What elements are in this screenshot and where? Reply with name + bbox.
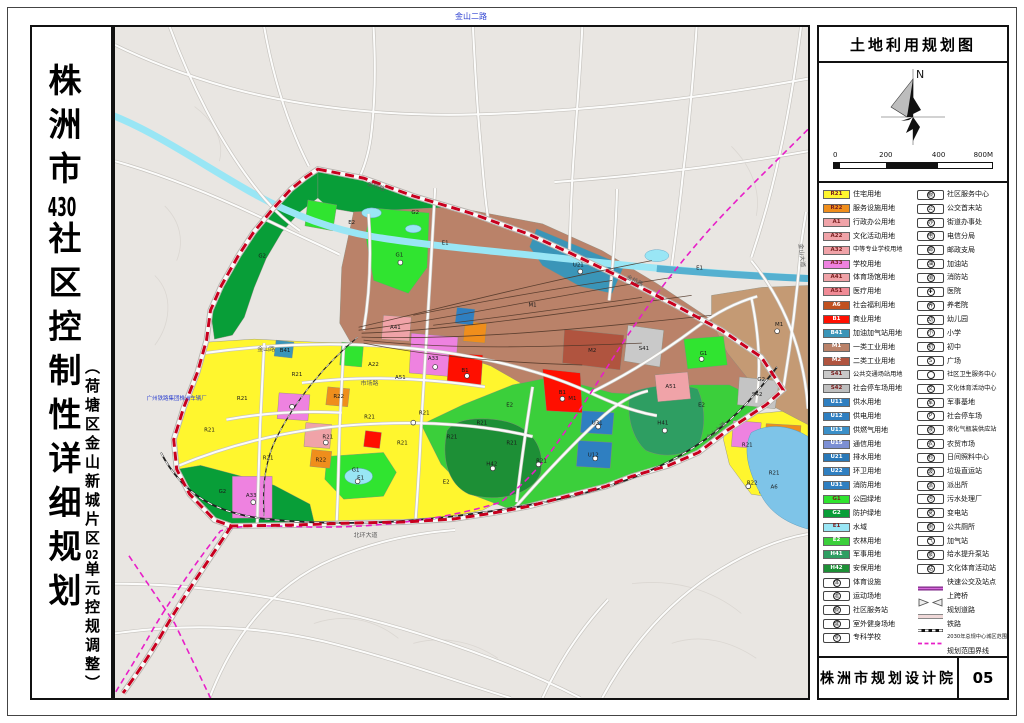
zone-code-label: R21 — [292, 372, 303, 378]
legend-row: A6社会福利用地 — [823, 299, 915, 313]
legend-label: 规划范围界线 — [947, 648, 989, 655]
legend-swatch: A33 — [823, 260, 850, 269]
legend-symbol-icon: 专 — [823, 633, 850, 643]
legend-label: 社区服务站 — [853, 607, 888, 614]
legend-row: A33学校用地 — [823, 257, 915, 271]
zone-code-label: R21 — [364, 415, 375, 421]
legend-label: 2030年总规中心城区范围界线 — [947, 635, 1007, 640]
legend-swatch: S41 — [823, 370, 850, 379]
legend-label: 军事用地 — [853, 551, 881, 558]
legend-label: 专科学校 — [853, 634, 881, 641]
legend-swatch: U22 — [823, 467, 850, 476]
legend-swatch: A51 — [823, 287, 850, 296]
legend-swatch: B41 — [823, 329, 850, 338]
legend-row: 专专科学校 — [823, 631, 915, 645]
zone-code-label: R22 — [333, 394, 344, 400]
legend-symbol-icon: 料 — [917, 453, 944, 463]
legend-row: U12供电用地 — [823, 410, 915, 424]
zone-code-label: E1 — [696, 266, 703, 272]
legend-line-symbol-boundary — [917, 647, 944, 656]
legend-row: 气加气站 — [917, 534, 1007, 548]
legend-row: A32中等专业学校用地 — [823, 243, 915, 257]
legend-row: 服社区服务站 — [823, 603, 915, 617]
legend-swatch: S42 — [823, 384, 850, 393]
legend-swatch: E2 — [823, 537, 850, 546]
legend: R21住宅用地R22服务设施用地A1行政办公用地A22文化活动用地A32中等专业… — [819, 183, 1007, 656]
legend-row: 运运动场地 — [823, 589, 915, 603]
legend-label: 水域 — [853, 524, 867, 531]
scale-tick: 0 — [833, 151, 837, 159]
zone-code-label: R21 — [477, 421, 488, 427]
legend-row: 办街道办事处 — [917, 216, 1007, 230]
legend-label: 快速公交及站点 — [947, 579, 996, 586]
legend-symbol-icon: 文 — [917, 384, 944, 394]
compass-box: N 0200400800M — [819, 63, 1007, 183]
legend-row: 2030年总规中心城区范围界线 — [917, 631, 1007, 645]
zone-code-label: A51 — [395, 375, 406, 381]
legend-row: A41体育场馆用地 — [823, 271, 915, 285]
legend-row: H41军事用地 — [823, 548, 915, 562]
legend-label: 社会停车场 — [947, 413, 982, 420]
legend-row: 电电信分局 — [917, 230, 1007, 244]
zone-code-label: B1 — [461, 368, 468, 374]
legend-column-right: 服社区服务中心公公交首末站办街道办事处电电信分局邮邮政支局油加油站消消防站✚医院… — [917, 188, 1007, 654]
legend-label: 体育场馆用地 — [853, 274, 895, 281]
legend-swatch: A1 — [823, 218, 850, 227]
legend-swatch: A41 — [823, 273, 850, 282]
legend-row: A51医疗用地 — [823, 285, 915, 299]
legend-swatch: A22 — [823, 232, 850, 241]
legend-label: 室外健身场地 — [853, 621, 895, 628]
legend-label: 通信用地 — [853, 441, 881, 448]
zone-code-label: G2 — [411, 210, 419, 216]
legend-label: 日间照料中心 — [947, 454, 989, 461]
legend-symbol-icon: 养 — [917, 301, 944, 311]
legend-label: 文化活动用地 — [853, 233, 895, 240]
legend-swatch: R21 — [823, 190, 850, 199]
legend-label: 派出所 — [947, 482, 968, 489]
agency-name: 株洲市规划设计院 — [819, 658, 957, 698]
legend-row: G1公园绿地 — [823, 493, 915, 507]
legend-label: 文化体育活动中心 — [947, 386, 997, 392]
legend-row: 上跨桥 — [917, 589, 1007, 603]
landuse-map[interactable]: 金桥路金桥路北环大道金山大道金山大道市场路金山路广州铁路集团株洲车辆厂G2G2G… — [115, 27, 808, 698]
legend-label: 社会停车场用地 — [853, 385, 902, 392]
legend-swatch: M1 — [823, 343, 850, 352]
zone-code-label: R21 — [263, 455, 274, 461]
zone-code-label: A33 — [428, 356, 439, 362]
legend-symbol-icon: 邮 — [917, 245, 944, 255]
legend-row: 油加油站 — [917, 257, 1007, 271]
map-title: 土地利用规划图 — [819, 27, 1007, 63]
legend-row: E1水域 — [823, 520, 915, 534]
legend-row: P社会停车场 — [917, 410, 1007, 424]
legend-label: 公园绿地 — [853, 496, 881, 503]
zone-code-label: G2 — [757, 377, 765, 383]
legend-symbol-icon: 气 — [917, 536, 944, 546]
legend-symbol-icon: 服 — [917, 190, 944, 200]
legend-row: M1一类工业用地 — [823, 340, 915, 354]
legend-symbol-icon: 电 — [917, 231, 944, 241]
legend-swatch: B1 — [823, 315, 850, 324]
legend-label: 公交首末站 — [947, 205, 982, 212]
zone-code-label: M1 — [775, 322, 783, 328]
legend-label: 住宅用地 — [853, 191, 881, 198]
legend-row: 液液化气瓶装供应站 — [917, 423, 1007, 437]
legend-label: 垃圾直运站 — [947, 468, 982, 475]
zone-code-label: B1 — [559, 390, 566, 396]
legend-swatch: R22 — [823, 204, 850, 213]
legend-label: 公共交通场站用地 — [853, 372, 903, 378]
legend-line-symbol-bridge — [917, 592, 944, 601]
title-bar: 株洲市规划设计院 05 — [819, 656, 1007, 698]
zone-code-label: G2 — [219, 489, 227, 495]
north-arrow-icon: N — [871, 65, 955, 149]
plan-sub-title: （荷塘区金山新城片区02单元控规调整） — [84, 359, 99, 694]
zone-code-label: S42 — [752, 392, 762, 398]
legend-row: 圾垃圾直运站 — [917, 465, 1007, 479]
scale-tick: 800M — [974, 151, 993, 159]
legend-label: 行政办公用地 — [853, 219, 895, 226]
legend-row: B1商业用地 — [823, 313, 915, 327]
legend-line-symbol-line2030 — [917, 633, 944, 642]
zone-code-label: R21 — [204, 428, 215, 434]
zone-code-label: E1 — [442, 241, 449, 247]
legend-symbol-icon: 厕 — [917, 522, 944, 532]
legend-label: 学校用地 — [853, 261, 881, 268]
legend-symbol-icon: ✚ — [917, 287, 944, 297]
legend-label: 运动场地 — [853, 593, 881, 600]
legend-symbol-icon: 农 — [917, 439, 944, 449]
legend-label: 供燃气用地 — [853, 427, 888, 434]
zone-code-label: R21 — [536, 458, 547, 464]
legend-row: 邮邮政支局 — [917, 243, 1007, 257]
legend-row: 厕公共厕所 — [917, 520, 1007, 534]
legend-label: 加气站 — [947, 538, 968, 545]
legend-symbol-icon: 站 — [917, 564, 944, 574]
legend-label: 铁路 — [947, 621, 961, 628]
legend-label: 规划道路 — [947, 607, 975, 614]
legend-row: A22文化活动用地 — [823, 230, 915, 244]
legend-row: ✚医院 — [917, 285, 1007, 299]
legend-row: 农农贸市场 — [917, 437, 1007, 451]
zone-code-label: R22 — [747, 480, 758, 486]
legend-row: S广场 — [917, 354, 1007, 368]
zone-code-label: R21 — [419, 411, 430, 417]
zone-code-label: R22 — [315, 457, 326, 463]
north-label: N — [916, 68, 924, 81]
legend-row: R22服务设施用地 — [823, 202, 915, 216]
zone-code-label: U12 — [588, 452, 599, 458]
legend-label: 社会福利用地 — [853, 302, 895, 309]
legend-row: 站文化体育活动站 — [917, 562, 1007, 576]
legend-label: 服务设施用地 — [853, 205, 895, 212]
zone-code-label: R21 — [237, 396, 248, 402]
legend-swatch: M2 — [823, 357, 850, 366]
drawing-sheet: 株洲市430社区控制性详细规划 （荷塘区金山新城片区02单元控规调整） 金山二路 — [0, 0, 1024, 723]
legend-row: 服社区服务中心 — [917, 188, 1007, 202]
legend-label: 医疗用地 — [853, 288, 881, 295]
legend-symbol-icon — [917, 370, 944, 380]
legend-row: A1行政办公用地 — [823, 216, 915, 230]
zone-code-label: R21 — [322, 435, 333, 441]
legend-row: 料日间照料中心 — [917, 451, 1007, 465]
zone-code-label: A6 — [771, 484, 779, 490]
legend-label: 农贸市场 — [947, 441, 975, 448]
legend-row: S41公共交通场站用地 — [823, 368, 915, 382]
legend-symbol-icon: S — [917, 356, 944, 366]
legend-line-symbol-road — [917, 606, 944, 615]
scale-tick: 200 — [879, 151, 892, 159]
legend-swatch: U12 — [823, 412, 850, 421]
zone-code-label: R21 — [506, 441, 517, 447]
legend-label: 体育设施 — [853, 579, 881, 586]
legend-row: 派派出所 — [917, 479, 1007, 493]
legend-symbol-icon: 体 — [823, 578, 850, 588]
scale-tick-labels: 0200400800M — [833, 151, 993, 160]
legend-row: S42社会停车场用地 — [823, 382, 915, 396]
legend-label: 社区卫生服务中心 — [947, 372, 997, 378]
legend-label: 消防站 — [947, 274, 968, 281]
zone-code-label: U21 — [573, 263, 584, 269]
legend-label: 商业用地 — [853, 316, 881, 323]
zone-code-label: G2 — [258, 254, 266, 260]
legend-row: 小小学 — [917, 326, 1007, 340]
legend-label: 养老院 — [947, 302, 968, 309]
zone-code-label: E2 — [348, 220, 355, 226]
legend-column-left: R21住宅用地R22服务设施用地A1行政办公用地A22文化活动用地A32中等专业… — [823, 188, 915, 654]
zone-code-label: G1 — [396, 253, 404, 259]
legend-row: U31消防用地 — [823, 479, 915, 493]
legend-row: 体体育设施 — [823, 576, 915, 590]
legend-row: 健室外健身场地 — [823, 617, 915, 631]
legend-row: H42安保用地 — [823, 562, 915, 576]
road-name-label: 金山路 — [257, 345, 275, 353]
annotation-label: 广州铁路集团株洲车辆厂 — [147, 394, 208, 402]
legend-row: 军军事基地 — [917, 396, 1007, 410]
legend-symbol-icon: 圾 — [917, 467, 944, 477]
legend-row: 初初中 — [917, 340, 1007, 354]
zone-code-label: E2 — [443, 479, 450, 485]
zone-code-label: M1 — [568, 396, 576, 402]
legend-swatch: U31 — [823, 481, 850, 490]
legend-label: 军事基地 — [947, 399, 975, 406]
legend-label: 小学 — [947, 330, 961, 337]
legend-row: G2防护绿地 — [823, 506, 915, 520]
legend-row: 规划道路 — [917, 603, 1007, 617]
legend-row: U15通信用地 — [823, 437, 915, 451]
legend-row: 社区卫生服务中心 — [917, 368, 1007, 382]
legend-label: 邮政支局 — [947, 247, 975, 254]
zone-code-label: B41 — [280, 348, 291, 354]
legend-label: 污水处理厂 — [947, 496, 982, 503]
legend-symbol-icon: 公 — [917, 204, 944, 214]
zone-code-label: E2 — [698, 403, 705, 409]
legend-row: R21住宅用地 — [823, 188, 915, 202]
zone-code-label: H42 — [486, 461, 497, 467]
legend-symbol-icon: 变 — [917, 508, 944, 518]
legend-label: 二类工业用地 — [853, 358, 895, 365]
legend-label: 消防用地 — [853, 482, 881, 489]
legend-label: 社区服务中心 — [947, 191, 989, 198]
road-name-label: 北环大道 — [354, 531, 378, 539]
legend-row: 消消防站 — [917, 271, 1007, 285]
zone-code-label: R21 — [397, 441, 408, 447]
road-name-label: 市场路 — [361, 379, 379, 387]
legend-label: 一类工业用地 — [853, 344, 895, 351]
legend-label: 农林用地 — [853, 538, 881, 545]
legend-swatch: G1 — [823, 495, 850, 504]
scale-tick: 400 — [932, 151, 945, 159]
legend-label: 加油站 — [947, 261, 968, 268]
legend-symbol-icon: 军 — [917, 398, 944, 408]
legend-symbol-icon: 小 — [917, 328, 944, 338]
legend-swatch: U11 — [823, 398, 850, 407]
legend-swatch: H42 — [823, 564, 850, 573]
legend-label: 中等专业学校用地 — [853, 247, 903, 253]
zone-code-label: R21 — [769, 470, 780, 476]
legend-swatch: A32 — [823, 246, 850, 255]
legend-label: 排水用地 — [853, 454, 881, 461]
map-frame: 金桥路金桥路北环大道金山大道金山大道市场路金山路广州铁路集团株洲车辆厂G2G2G… — [113, 25, 810, 700]
legend-row: U21排水用地 — [823, 451, 915, 465]
zone-code-label: S41 — [639, 346, 649, 352]
legend-label: 加油加气站用地 — [853, 330, 902, 337]
legend-symbol-icon: 污 — [917, 494, 944, 504]
legend-symbol-icon: 办 — [917, 218, 944, 228]
zone-code-label: G1 — [700, 351, 708, 357]
legend-label: 防护绿地 — [853, 510, 881, 517]
legend-row: U13供燃气用地 — [823, 423, 915, 437]
zone-code-label: E2 — [506, 403, 513, 409]
legend-label: 液化气瓶装供应站 — [947, 427, 997, 433]
legend-symbol-icon: 派 — [917, 481, 944, 491]
legend-swatch: U15 — [823, 440, 850, 449]
legend-row: 公公交首末站 — [917, 202, 1007, 216]
sheet-number: 05 — [957, 658, 1007, 698]
zone-code-label: G1 — [352, 467, 360, 473]
legend-row: M2二类工业用地 — [823, 354, 915, 368]
legend-row: B41加油加气站用地 — [823, 326, 915, 340]
legend-label: 广场 — [947, 358, 961, 365]
zone-code-label: A51 — [665, 384, 676, 390]
legend-label: 医院 — [947, 288, 961, 295]
legend-swatch: A6 — [823, 301, 850, 310]
legend-swatch: U13 — [823, 426, 850, 435]
legend-label: 初中 — [947, 344, 961, 351]
legend-symbol-icon: 液 — [917, 425, 944, 435]
legend-label: 变电站 — [947, 510, 968, 517]
legend-panel: 土地利用规划图 N 0200400800M — [817, 25, 1009, 700]
legend-symbol-icon: 初 — [917, 342, 944, 352]
legend-row: 快速公交及站点 — [917, 576, 1007, 590]
legend-label: 上跨桥 — [947, 593, 968, 600]
legend-row: 污污水处理厂 — [917, 493, 1007, 507]
zone-code-label: M2 — [588, 348, 596, 354]
legend-row: 幼幼儿园 — [917, 313, 1007, 327]
zone-code-label: A33 — [246, 493, 257, 499]
legend-row: 铁路 — [917, 617, 1007, 631]
legend-row: 规划范围界线 — [917, 645, 1007, 656]
zone-code-label: R21 — [742, 442, 753, 448]
legend-swatch: U21 — [823, 453, 850, 462]
legend-row: 变变电站 — [917, 506, 1007, 520]
left-title-block: 株洲市430社区控制性详细规划 （荷塘区金山新城片区02单元控规调整） — [30, 25, 113, 700]
zone-code-label: H41 — [657, 421, 668, 427]
legend-swatch: G2 — [823, 509, 850, 518]
legend-symbol-icon: 服 — [823, 605, 850, 615]
legend-symbol-icon: 幼 — [917, 315, 944, 325]
legend-row: 泵给水提升泵站 — [917, 548, 1007, 562]
legend-symbol-icon: 泵 — [917, 550, 944, 560]
legend-label: 公共厕所 — [947, 524, 975, 531]
legend-symbol-icon: P — [917, 411, 944, 421]
zone-code-label: R21 — [447, 435, 458, 441]
legend-symbol-icon: 油 — [917, 259, 944, 269]
legend-label: 街道办事处 — [947, 219, 982, 226]
legend-symbol-icon: 运 — [823, 591, 850, 601]
legend-row: U22环卫用地 — [823, 465, 915, 479]
legend-line-symbol-brt — [917, 578, 944, 587]
legend-line-symbol-rail — [917, 620, 944, 629]
legend-label: 环卫用地 — [853, 468, 881, 475]
plan-main-title: 株洲市430社区控制性详细规划 — [46, 63, 79, 617]
legend-symbol-icon: 健 — [823, 619, 850, 629]
legend-label: 幼儿园 — [947, 316, 968, 323]
legend-row: 养养老院 — [917, 299, 1007, 313]
legend-swatch: E1 — [823, 523, 850, 532]
zone-code-label: E1 — [357, 475, 364, 481]
zone-code-label: M1 — [528, 302, 536, 308]
legend-row: 文文化体育活动中心 — [917, 382, 1007, 396]
margin-road-label: 金山二路 — [455, 11, 487, 22]
legend-label: 安保用地 — [853, 565, 881, 572]
legend-row: U11供水用地 — [823, 396, 915, 410]
legend-label: 供水用地 — [853, 399, 881, 406]
legend-label: 文化体育活动站 — [947, 565, 996, 572]
legend-label: 电信分局 — [947, 233, 975, 240]
legend-symbol-icon: 消 — [917, 273, 944, 283]
zone-code-label: U31 — [592, 421, 603, 427]
legend-label: 给水提升泵站 — [947, 551, 989, 558]
zone-code-label: A41 — [390, 325, 401, 331]
zone-code-label: A22 — [368, 362, 379, 368]
legend-row: E2农林用地 — [823, 534, 915, 548]
legend-swatch: H41 — [823, 550, 850, 559]
legend-label: 供电用地 — [853, 413, 881, 420]
scale-bar: 0200400800M — [833, 151, 993, 173]
